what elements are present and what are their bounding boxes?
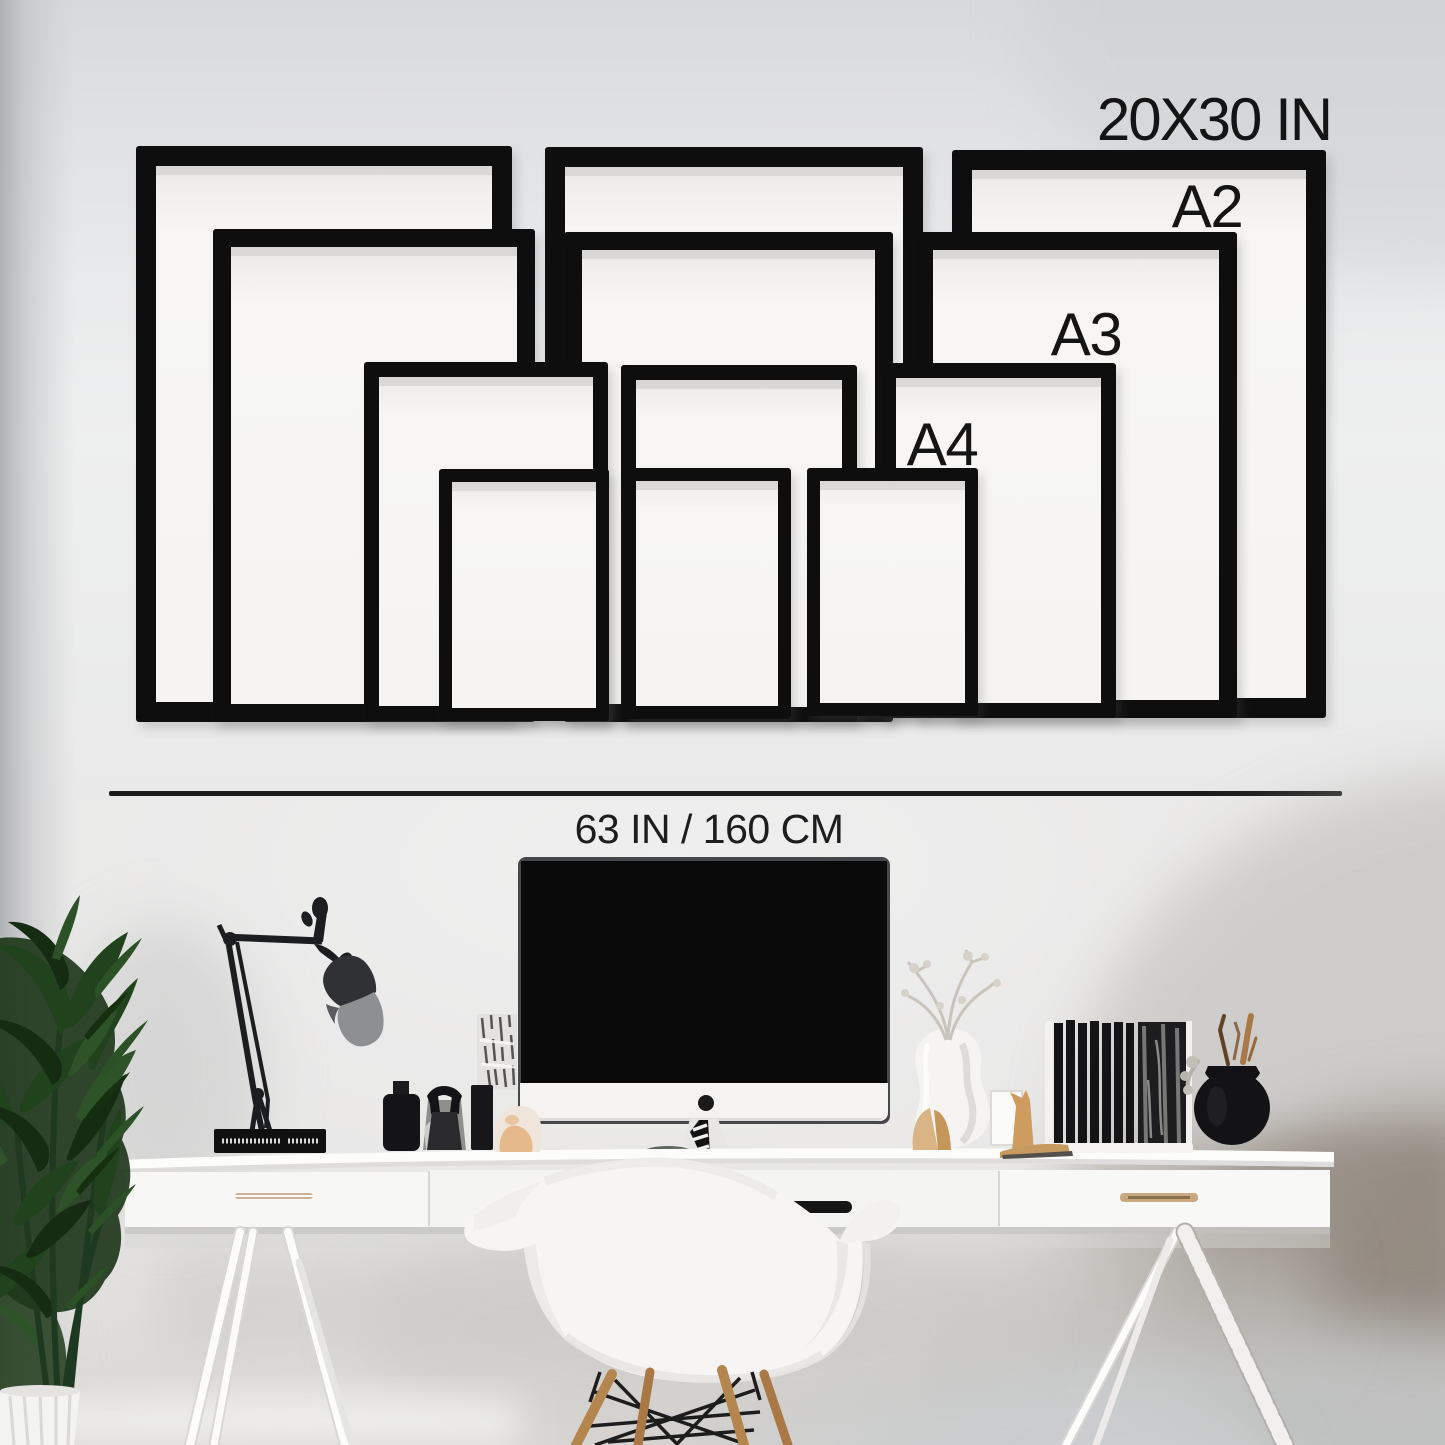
- svg-text:20X30 IN: 20X30 IN: [1097, 86, 1331, 153]
- svg-text:63 IN / 160 CM: 63 IN / 160 CM: [575, 806, 844, 852]
- svg-text:A4: A4: [907, 411, 978, 478]
- svg-text:A2: A2: [1172, 173, 1242, 240]
- svg-text:A3: A3: [1051, 301, 1121, 368]
